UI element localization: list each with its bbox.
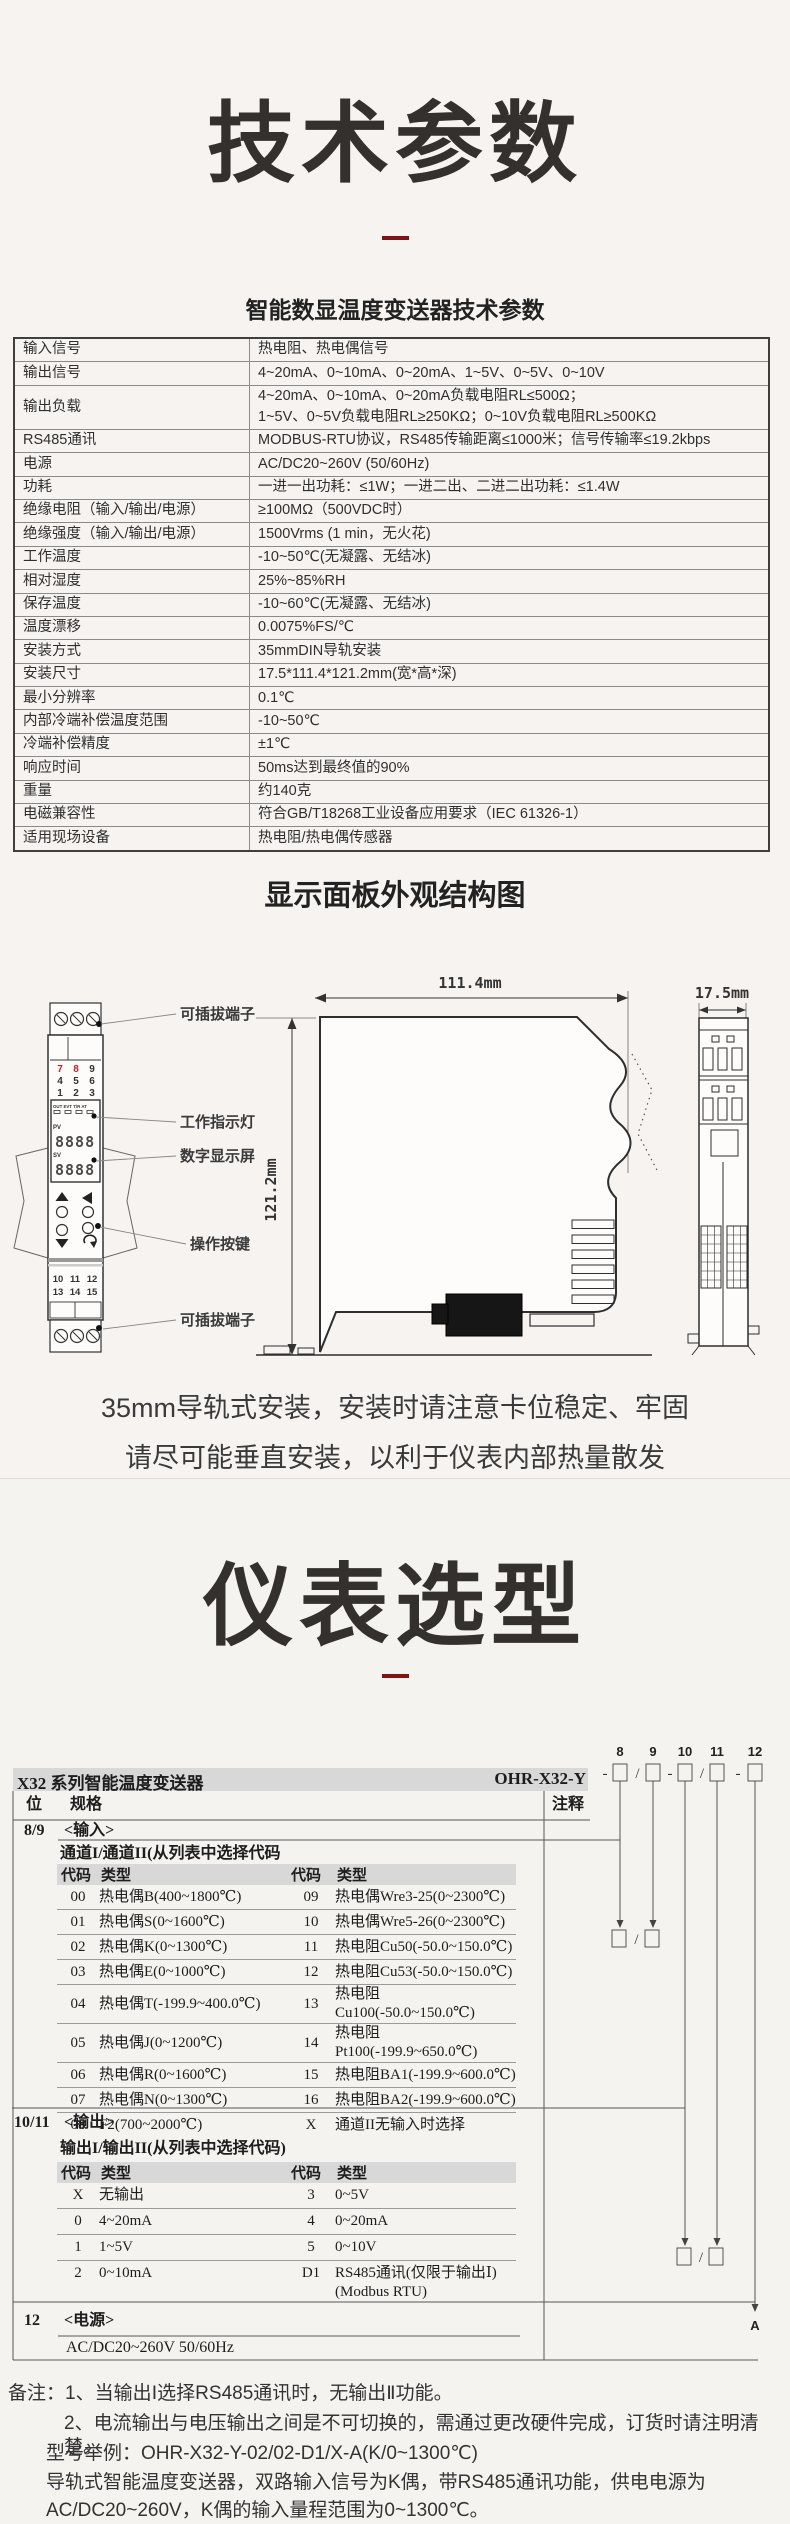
- code-type: 热电阻BA1(-199.9~600.0℃): [333, 2063, 516, 2088]
- code-value: 2: [57, 2261, 97, 2307]
- code-value: X: [287, 2113, 333, 2138]
- spec-value: 约140克: [250, 780, 770, 803]
- svg-text:9: 9: [89, 1064, 95, 1075]
- svg-text:14: 14: [70, 1287, 81, 1298]
- code-type: F2(700~2000℃): [97, 2113, 287, 2138]
- label-terminal-bottom: 可插拔端子: [180, 1311, 255, 1329]
- svg-text:3: 3: [89, 1088, 95, 1099]
- spec-row: 绝缘强度（输入/输出/电源）1500Vrms (1 min，无火花): [14, 523, 769, 546]
- code-type: 热电偶N(0~1300℃): [97, 2088, 287, 2113]
- spec-row: 输出信号4~20mA、0~10mA、0~20mA、1~5V、0~5V、0~10V: [14, 362, 769, 385]
- spec-row: RS485通讯MODBUS-RTU协议，RS485传输距离≤1000米；信号传输…: [14, 429, 769, 452]
- spec-row: 温度漂移0.0075%FS/℃: [14, 616, 769, 639]
- svg-text:6: 6: [89, 1076, 95, 1087]
- remark-line5: AC/DC20~260V，K偶的输入量程范围为0~1300℃。: [46, 2499, 489, 2523]
- spec-label: 绝缘强度（输入/输出/电源）: [14, 523, 250, 546]
- power-section-title: <电源>: [64, 2310, 114, 2332]
- svg-text:12: 12: [87, 1274, 98, 1285]
- spec-row: 相对湿度25%~85%RH: [14, 570, 769, 593]
- code-value: 0: [57, 2209, 97, 2235]
- rail-lock-connector: [446, 1294, 522, 1336]
- spec-value: 0.1℃: [250, 687, 770, 710]
- input-code-table-header: 代码 类型 代码 类型: [57, 1864, 516, 1885]
- spec-label: 内部冷端补偿温度范围: [14, 710, 250, 733]
- spec-row: 电磁兼容性符合GB/T18268工业设备应用要求（IEC 61326-1）: [14, 804, 769, 827]
- code-row: 20~10mAD1RS485通讯(仅限于输出Ⅰ) (Modbus RTU): [57, 2261, 516, 2307]
- spec-value: 0.0075%FS/℃: [250, 616, 770, 639]
- code-value: 02: [57, 1935, 97, 1960]
- din-rail-right: [103, 1148, 137, 1258]
- code-row: X无输出30~5V: [57, 2183, 516, 2209]
- spec-value: 35mmDIN导轨安装: [250, 640, 770, 663]
- spec-label: 适用现场设备: [14, 827, 250, 851]
- code-value: 07: [57, 2088, 97, 2113]
- code-type: 热电偶Wre3-25(0~2300℃): [333, 1885, 516, 1910]
- spec-row: 内部冷端补偿温度范围-10~50℃: [14, 710, 769, 733]
- panel-structure-title: 显示面板外观结构图: [0, 872, 790, 914]
- dim-depth-label: 17.5mm: [695, 984, 749, 1002]
- code-value: 12: [287, 1960, 333, 1985]
- code-value: X: [57, 2183, 97, 2209]
- panel-structure-diagram: 7 8 9 4 5 6 1 2 3 OUT EVT T/R AT PV 8888…: [0, 958, 790, 1362]
- code-type: 通道II无输入时选择: [333, 2113, 516, 2138]
- spec-label: 最小分辨率: [14, 687, 250, 710]
- code-value: 13: [287, 1985, 333, 2024]
- svg-text:4: 4: [57, 1076, 63, 1087]
- code-type: 0~10mA: [97, 2261, 287, 2307]
- code-value: 06: [57, 2063, 97, 2088]
- code-value: 03: [57, 1960, 97, 1985]
- code-row: 07热电偶N(0~1300℃)16热电阻BA2(-199.9~600.0℃): [57, 2088, 516, 2113]
- buttons-marker-dot: [95, 1223, 101, 1229]
- code-type: 无输出: [97, 2183, 287, 2209]
- code-row: 11~5V50~10V: [57, 2235, 516, 2261]
- spec-value: 25%~85%RH: [250, 570, 770, 593]
- code-value: 3: [287, 2183, 333, 2209]
- pv-label: PV: [53, 1125, 61, 1131]
- spec-label: 安装方式: [14, 640, 250, 663]
- label-buttons: 操作按键: [190, 1235, 250, 1253]
- install-note-line2: 请尽可能垂直安装，以利于仪表内部热量散发: [0, 1436, 790, 1475]
- code-header: 代码: [57, 1864, 97, 1885]
- spec-row: 输入信号热电阻、热电偶信号: [14, 338, 769, 362]
- code-type: 热电阻Cu50(-50.0~150.0℃): [333, 1935, 516, 1960]
- rail-clamp: [530, 1314, 594, 1326]
- code-value: 10: [287, 1910, 333, 1935]
- spec-label: 绝缘电阻（输入/输出/电源）: [14, 499, 250, 522]
- spec-row: 电源AC/DC20~260V (50/60Hz): [14, 453, 769, 476]
- input-section-title: <输入>: [64, 1820, 114, 1842]
- code-row: 03热电偶E(0~1000℃)12热电阻Cu53(-50.0~150.0℃): [57, 1960, 516, 1985]
- power-section-value: AC/DC20~260V 50/60Hz: [66, 2339, 234, 2357]
- din-rail-left: [14, 1148, 48, 1258]
- spec-label: 输入信号: [14, 338, 250, 362]
- spec-value: -10~60℃(无凝露、无结冰): [250, 593, 770, 616]
- spec-label: 输出负载: [14, 385, 250, 429]
- code-value: 16: [287, 2088, 333, 2113]
- code-type: 4~20mA: [97, 2209, 287, 2235]
- code-type: 热电偶E(0~1000℃): [97, 1960, 287, 1985]
- svg-text:2: 2: [73, 1088, 79, 1099]
- spec-value: 4~20mA、0~10mA、0~20mA、1~5V、0~5V、0~10V: [250, 362, 770, 385]
- code-type: 热电偶J(0~1200℃): [97, 2024, 287, 2063]
- type-header: 类型: [97, 1864, 287, 1885]
- product-series-name: X32 系列智能温度变送器: [17, 1769, 204, 1794]
- spec-row: 功耗一进一出功耗：≤1W；一进二出、二进二出功耗：≤1.4W: [14, 476, 769, 499]
- sv-label: SV: [53, 1153, 61, 1159]
- spec-value: -10~50℃(无凝露、无结冰): [250, 546, 770, 569]
- code-header: 代码: [287, 2162, 333, 2183]
- code-value: 14: [287, 2024, 333, 2063]
- spec-row: 输出负载4~20mA、0~10mA、0~20mA负载电阻RL≤500Ω； 1~5…: [14, 385, 769, 429]
- spec-row: 工作温度-10~50℃(无凝露、无结冰): [14, 546, 769, 569]
- code-value: 00: [57, 1885, 97, 1910]
- code-value: 15: [287, 2063, 333, 2088]
- svg-text:10: 10: [53, 1274, 64, 1285]
- spec-label: 保存温度: [14, 593, 250, 616]
- col-header-pos: 位: [26, 1794, 42, 1816]
- spec-value: 50ms达到最终值的90%: [250, 757, 770, 780]
- spec-table-title: 智能数显温度变送器技术参数: [0, 291, 790, 325]
- code-value: 5: [287, 2235, 333, 2261]
- code-type: 热电偶T(-199.9~400.0℃): [97, 1985, 287, 2024]
- side-view: 111.4mm 121.2mm: [256, 974, 658, 1355]
- svg-text:5: 5: [73, 1076, 79, 1087]
- dim-height-label: 121.2mm: [262, 1158, 280, 1221]
- code-value: 4: [287, 2209, 333, 2235]
- spec-value: 热电阻、热电偶信号: [250, 338, 770, 362]
- edge-view: 17.5mm: [688, 984, 759, 1355]
- spec-label: 电磁兼容性: [14, 804, 250, 827]
- spec-row: 重量约140克: [14, 780, 769, 803]
- output-code-table-body: X无输出30~5V04~20mA40~20mA11~5V50~10V20~10m…: [57, 2183, 516, 2306]
- svg-text:13: 13: [53, 1287, 64, 1298]
- code-type: RS485通讯(仅限于输出Ⅰ) (Modbus RTU): [333, 2261, 516, 2307]
- spec-label: 响应时间: [14, 757, 250, 780]
- spec-label: 相对湿度: [14, 570, 250, 593]
- spec-value: 热电阻/热电偶传感器: [250, 827, 770, 851]
- col-header-note: 注释: [552, 1794, 584, 1816]
- type-header: 类型: [333, 2162, 516, 2183]
- input-code-table-body: 00热电偶B(400~1800℃)09热电偶Wre3-25(0~2300℃)01…: [57, 1885, 516, 2137]
- type-header: 类型: [97, 2162, 287, 2183]
- page-title-tech-params: 技术参数: [0, 100, 790, 188]
- svg-text:11: 11: [70, 1274, 81, 1285]
- code-type: 热电偶Wre5-26(0~2300℃): [333, 1910, 516, 1935]
- spec-row: 适用现场设备热电阻/热电偶传感器: [14, 827, 769, 851]
- model-prefix: OHR-X32-Y: [490, 1769, 586, 1789]
- spec-value: 符合GB/T18268工业设备应用要求（IEC 61326-1）: [250, 804, 770, 827]
- indicator-marker-dot: [91, 1113, 96, 1118]
- code-row: 01热电偶S(0~1600℃)10热电偶Wre5-26(0~2300℃): [57, 1910, 516, 1935]
- remark-line3: 型号举例：OHR-X32-Y-02/02-D1/X-A(K/0~1300℃): [46, 2442, 478, 2466]
- spec-label: 工作温度: [14, 546, 250, 569]
- spec-label: 冷端补偿精度: [14, 733, 250, 756]
- spec-value: 1500Vrms (1 min，无火花): [250, 523, 770, 546]
- install-note-line1: 35mm导轨式安装，安装时请注意卡位稳定、牢固: [0, 1386, 790, 1425]
- svg-text:8: 8: [73, 1064, 79, 1075]
- spec-value: ±1℃: [250, 733, 770, 756]
- code-value: 11: [287, 1935, 333, 1960]
- code-value: 04: [57, 1985, 97, 2024]
- spec-label: RS485通讯: [14, 429, 250, 452]
- code-type: 热电偶K(0~1300℃): [97, 1935, 287, 1960]
- code-value: 1: [57, 2235, 97, 2261]
- spec-value: 4~20mA、0~10mA、0~20mA负载电阻RL≤500Ω； 1~5V、0~…: [250, 385, 770, 429]
- output-section-title: <输出>: [64, 2112, 114, 2134]
- code-row: 00热电偶B(400~1800℃)09热电偶Wre3-25(0~2300℃): [57, 1885, 516, 1910]
- spec-row: 响应时间50ms达到最终值的90%: [14, 757, 769, 780]
- code-type: 热电阻BA2(-199.9~600.0℃): [333, 2088, 516, 2113]
- pv-digits: 8888: [55, 1133, 95, 1151]
- power-section-pos: 12: [24, 2310, 40, 2332]
- spec-row: 安装方式35mmDIN导轨安装: [14, 640, 769, 663]
- code-type: 热电偶S(0~1600℃): [97, 1910, 287, 1935]
- spec-label: 温度漂移: [14, 616, 250, 639]
- remark-line1: 备注：1、当输出Ⅰ选择RS485通讯时，无输出Ⅱ功能。: [8, 2382, 453, 2406]
- input-code-table: 代码 类型 代码 类型 00热电偶B(400~1800℃)09热电偶Wre3-2…: [57, 1864, 516, 2137]
- code-row: 08F2(700~2000℃)X通道II无输入时选择: [57, 2113, 516, 2138]
- spec-row: 保存温度-10~60℃(无凝露、无结冰): [14, 593, 769, 616]
- callout-labels: 可插拔端子 工作指示灯 数字显示屏 操作按键 可插拔端子: [96, 1005, 255, 1329]
- code-type: 热电阻Cu53(-50.0~150.0℃): [333, 1960, 516, 1985]
- svg-text:1: 1: [57, 1088, 63, 1099]
- code-type: 热电阻Pt100(-199.9~650.0℃): [333, 2024, 516, 2063]
- code-type: 0~10V: [333, 2235, 516, 2261]
- spec-value: 一进一出功耗：≤1W；一进二出、二进二出功耗：≤1.4W: [250, 476, 770, 499]
- output-section-subtitle: 输出I/输出II(从列表中选择代码): [60, 2138, 286, 2160]
- code-type: 热电阻Cu100(-50.0~150.0℃): [333, 1985, 516, 2024]
- code-row: 05热电偶J(0~1200℃)14热电阻Pt100(-199.9~650.0℃): [57, 2024, 516, 2063]
- type-header: 类型: [333, 1864, 516, 1885]
- spec-value: MODBUS-RTU协议，RS485传输距离≤1000米；信号传输率≤19.2k…: [250, 429, 770, 452]
- code-row: 06热电偶R(0~1600℃)15热电阻BA1(-199.9~600.0℃): [57, 2063, 516, 2088]
- code-type: 0~5V: [333, 2183, 516, 2209]
- spec-label: 功耗: [14, 476, 250, 499]
- svg-text:15: 15: [87, 1287, 98, 1298]
- terminal-bottom-marker-dot: [96, 1325, 102, 1331]
- code-row: 02热电偶K(0~1300℃)11热电阻Cu50(-50.0~150.0℃): [57, 1935, 516, 1960]
- code-value: 05: [57, 2024, 97, 2063]
- spec-value: 17.5*111.4*121.2mm(宽*高*深): [250, 663, 770, 686]
- label-display: 数字显示屏: [180, 1147, 255, 1165]
- remark-line4: 导轨式智能温度变送器，双路输入信号为K偶，带RS485通讯功能，供电电源为: [46, 2471, 706, 2495]
- spec-label: 电源: [14, 453, 250, 476]
- spec-label: 输出信号: [14, 362, 250, 385]
- svg-text:7: 7: [57, 1064, 63, 1075]
- code-value: 09: [287, 1885, 333, 1910]
- title-accent-dash: [382, 236, 409, 240]
- code-type: 热电偶R(0~1600℃): [97, 2063, 287, 2088]
- spec-table-body: 输入信号热电阻、热电偶信号输出信号4~20mA、0~10mA、0~20mA、1~…: [14, 338, 769, 851]
- spec-value: -10~50℃: [250, 710, 770, 733]
- label-indicator: 工作指示灯: [180, 1113, 255, 1131]
- status-led-labels: OUT EVT T/R AT: [53, 1104, 87, 1109]
- code-value: D1: [287, 2261, 333, 2307]
- spec-row: 最小分辨率0.1℃: [14, 687, 769, 710]
- title-accent-dash-2: [382, 1674, 409, 1678]
- spec-row: 安装尺寸17.5*111.4*121.2mm(宽*高*深): [14, 663, 769, 686]
- code-row: 04热电偶T(-199.9~400.0℃)13热电阻Cu100(-50.0~15…: [57, 1985, 516, 2024]
- label-terminal-top: 可插拔端子: [180, 1005, 255, 1023]
- code-type: 1~5V: [97, 2235, 287, 2261]
- page-title-model-selection: 仪表选型: [0, 1562, 790, 1652]
- spec-label: 重量: [14, 780, 250, 803]
- output-code-table-header: 代码 类型 代码 类型: [57, 2162, 516, 2183]
- input-section-pos: 8/9: [24, 1820, 44, 1842]
- spec-value: AC/DC20~260V (50/60Hz): [250, 453, 770, 476]
- code-type: 0~20mA: [333, 2209, 516, 2235]
- code-value: 01: [57, 1910, 97, 1935]
- spec-label: 安装尺寸: [14, 663, 250, 686]
- code-header: 代码: [57, 2162, 97, 2183]
- code-row: 04~20mA40~20mA: [57, 2209, 516, 2235]
- col-header-spec: 规格: [70, 1794, 102, 1816]
- output-section-pos: 10/11: [14, 2112, 50, 2134]
- spec-table: 输入信号热电阻、热电偶信号输出信号4~20mA、0~10mA、0~20mA、1~…: [13, 337, 770, 852]
- code-header: 代码: [287, 1864, 333, 1885]
- spec-row: 冷端补偿精度±1℃: [14, 733, 769, 756]
- spec-row: 绝缘电阻（输入/输出/电源）≥100MΩ（500VDC时）: [14, 499, 769, 522]
- spec-value: ≥100MΩ（500VDC时）: [250, 499, 770, 522]
- output-code-table: 代码 类型 代码 类型 X无输出30~5V04~20mA40~20mA11~5V…: [57, 2162, 516, 2306]
- input-section-subtitle: 通道I/通道II(从列表中选择代码: [60, 1843, 280, 1865]
- section-divider: [0, 1478, 790, 1479]
- sv-digits: 8888: [55, 1161, 95, 1179]
- code-type: 热电偶B(400~1800℃): [97, 1885, 287, 1910]
- dim-width-label: 111.4mm: [438, 974, 501, 992]
